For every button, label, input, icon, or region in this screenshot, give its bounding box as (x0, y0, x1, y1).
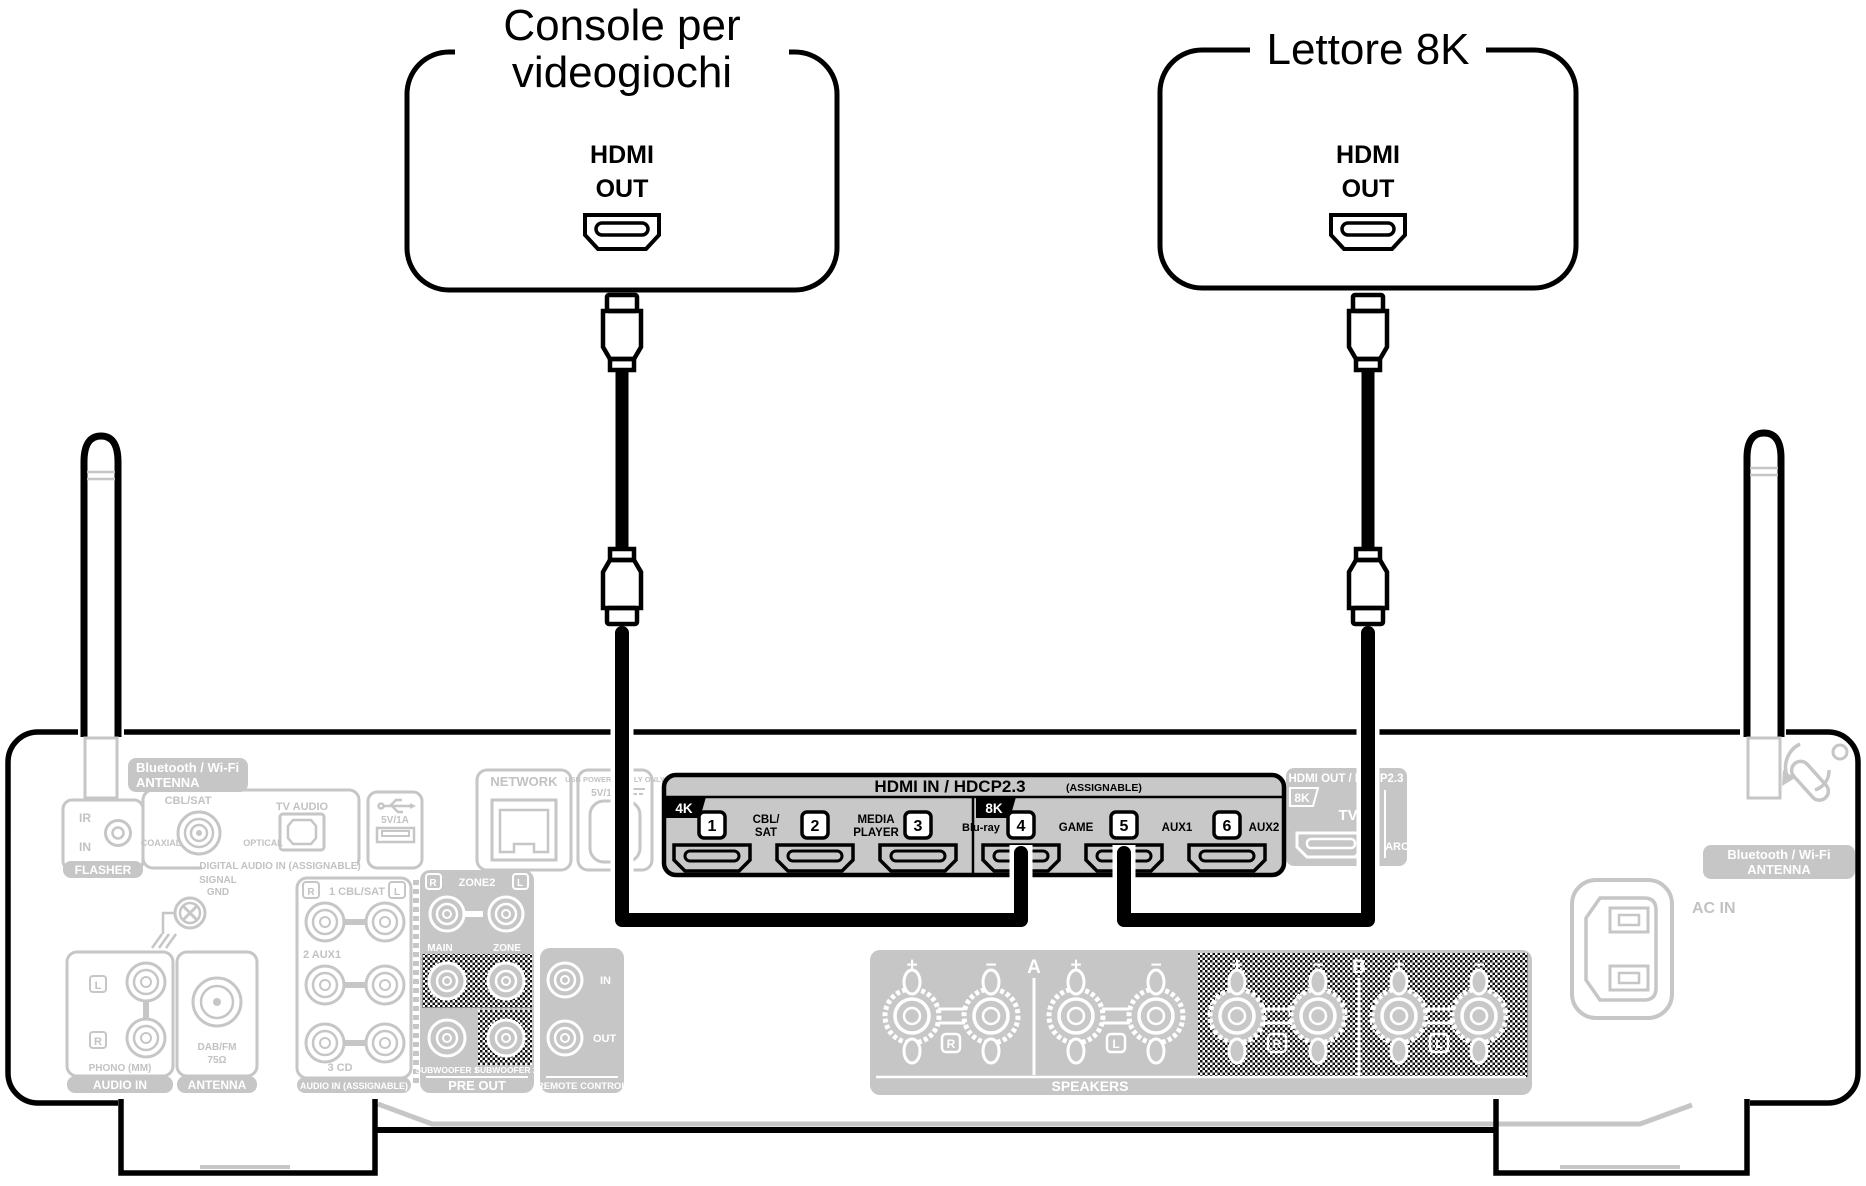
plus-sign: + (1231, 955, 1242, 976)
port-label: MEDIA (857, 814, 894, 826)
player8k-title: Lettore 8K (1266, 25, 1469, 74)
remote-in-label: IN (600, 975, 611, 987)
plus-sign: + (1393, 955, 1404, 976)
signal-gnd-line2: GND (207, 887, 229, 898)
port-number: 5 (1120, 818, 1129, 835)
antenna-rod-icon (1747, 433, 1781, 737)
left-foot (121, 1099, 375, 1173)
port-label: SAT (755, 827, 777, 839)
digital-audio-in-tab: DIGITAL AUDIO IN (ASSIGNABLE) (199, 861, 360, 872)
port-label: GAME (1059, 822, 1094, 834)
console-device-box: Console per videogiochi HDMI OUT (407, 1, 837, 290)
aux1-row-label: 2 AUX1 (303, 949, 341, 961)
remote-out-label: OUT (593, 1033, 617, 1045)
speaker-l-label: L (1112, 1037, 1119, 1051)
port-label: AUX2 (1249, 822, 1280, 834)
speaker-l-label: L (1435, 1037, 1442, 1051)
antenna-rod-icon (84, 436, 118, 737)
speaker-r-label: R (947, 1037, 956, 1051)
minus-sign: − (1473, 955, 1484, 976)
console-out-label: OUT (596, 175, 649, 203)
flasher-tab: FLASHER (75, 863, 132, 877)
plus-sign: + (1070, 955, 1081, 976)
port-label: CBL/ (753, 814, 781, 826)
hdmi-in-panel: HDMI IN / HDCP2.3 (ASSIGNABLE) 4K 8K 1 C… (664, 775, 1284, 875)
zone2-label: ZONE2 (459, 877, 496, 889)
hdmi-out-tv-label: TV (1338, 807, 1357, 824)
bt-antenna-left-line1: Bluetooth / Wi-Fi (136, 760, 239, 775)
ac-in-label: AC IN (1692, 900, 1736, 917)
bt-antenna-left-line2: ANTENNA (136, 775, 200, 790)
speakers-section: + − + − + − + − R L R L A B SPEAKERS (870, 950, 1532, 1095)
4k-badge-label: 4K (675, 801, 693, 816)
console-title-line2: videogiochi (512, 48, 732, 97)
hdmi-out-section: HDMI OUT / HDCP2.3 8K TV ARC (1286, 768, 1409, 866)
phono-l-label: L (95, 980, 102, 992)
audio-in-tab: AUDIO IN (93, 1078, 147, 1092)
player8k-out-label: OUT (1342, 175, 1395, 203)
cd-row-label: 3 CD (327, 1062, 352, 1074)
analog-l-label: L (394, 887, 400, 898)
coaxial-label: COAXIAL (141, 838, 182, 848)
phono-label: PHONO (MM) (89, 1063, 152, 1074)
minus-sign: − (985, 955, 996, 976)
minus-sign: − (1150, 955, 1161, 976)
hdmi-out-arc-label: ARC (1385, 841, 1409, 853)
remote-control-section: IN OUT REMOTE CONTROL (537, 948, 627, 1093)
main-label: MAIN (427, 943, 453, 954)
hdmi-in-assignable-label: (ASSIGNABLE) (1066, 782, 1142, 794)
analog-r-label: R (307, 887, 315, 898)
8k-badge-label: 8K (985, 801, 1003, 816)
dab-fm-label: DAB/FM (198, 1042, 237, 1053)
optical-tvaudio-label: TV AUDIO (276, 801, 329, 813)
signal-gnd-line1: SIGNAL (199, 875, 237, 886)
hdmi-out-header: HDMI OUT / HDCP2.3 (1288, 773, 1403, 785)
hdmi-plug-icon (603, 295, 641, 624)
hdmi-plug-icon (1349, 295, 1387, 624)
port-label: AUX1 (1162, 822, 1193, 834)
player8k-hdmi-label: HDMI (1336, 141, 1400, 169)
port-number: 2 (811, 818, 820, 835)
audio-in-assignable-tab: AUDIO IN (ASSIGNABLE) (300, 1081, 408, 1091)
ir-in-label: IN (79, 840, 91, 854)
connection-diagram: Bluetooth / Wi-Fi ANTENNA Bluetooth / Wi… (0, 0, 1866, 1186)
port-label: Blu-ray (962, 822, 1001, 834)
speakers-tab: SPEAKERS (1051, 1078, 1128, 1094)
pre-out-section: R ZONE2 L MAIN ZONE SUBWOOFER 1 SUBWOOFE… (415, 870, 538, 1093)
diagram-canvas: Bluetooth / Wi-Fi ANTENNA Bluetooth / Wi… (0, 0, 1866, 1186)
subwoofer2-label: SUBWOOFER 2 (474, 1065, 538, 1075)
phono-r-label: R (94, 1036, 102, 1048)
console-title-line1: Console per (503, 1, 740, 50)
right-foot (1496, 1099, 1747, 1173)
port-number: 4 (1017, 818, 1026, 835)
port-number: 1 (708, 818, 717, 835)
hdmi-out-8k-badge: 8K (1294, 791, 1310, 805)
bt-antenna-right-line2: ANTENNA (1747, 862, 1811, 877)
hdmi-in-header: HDMI IN / HDCP2.3 (874, 777, 1025, 796)
usb-rating-label: 5V/1A (381, 815, 409, 826)
pre-out-tab: PRE OUT (448, 1078, 506, 1093)
optical-label: OPTICAL (243, 838, 283, 848)
remote-control-tab: REMOTE CONTROL (537, 1081, 627, 1092)
ir-label: IR (79, 811, 91, 825)
speaker-group-a-label: A (1027, 957, 1041, 978)
zone2-r-label: R (429, 878, 437, 889)
console-hdmi-label: HDMI (590, 141, 654, 169)
zone-label: ZONE (493, 943, 521, 954)
coax-cblsat-label: CBL/SAT (165, 795, 212, 807)
minus-sign: − (1312, 955, 1323, 976)
bt-antenna-right-line1: Bluetooth / Wi-Fi (1727, 847, 1830, 862)
zone2-l-label: L (517, 878, 523, 889)
cbl-sat-row-label: 1 CBL/SAT (329, 886, 385, 898)
impedance-label: 75Ω (207, 1055, 226, 1066)
antenna-tab: ANTENNA (188, 1078, 247, 1092)
plus-sign: + (906, 955, 917, 976)
network-label: NETWORK (490, 774, 558, 789)
player8k-device-box: Lettore 8K HDMI OUT (1160, 25, 1576, 288)
speaker-group-b-label: B (1352, 957, 1366, 978)
speaker-r-label: R (1273, 1037, 1282, 1051)
port-number: 3 (914, 818, 923, 835)
port-number: 6 (1223, 818, 1232, 835)
subwoofer1-label: SUBWOOFER 1 (415, 1065, 479, 1075)
port-label: PLAYER (853, 827, 899, 839)
